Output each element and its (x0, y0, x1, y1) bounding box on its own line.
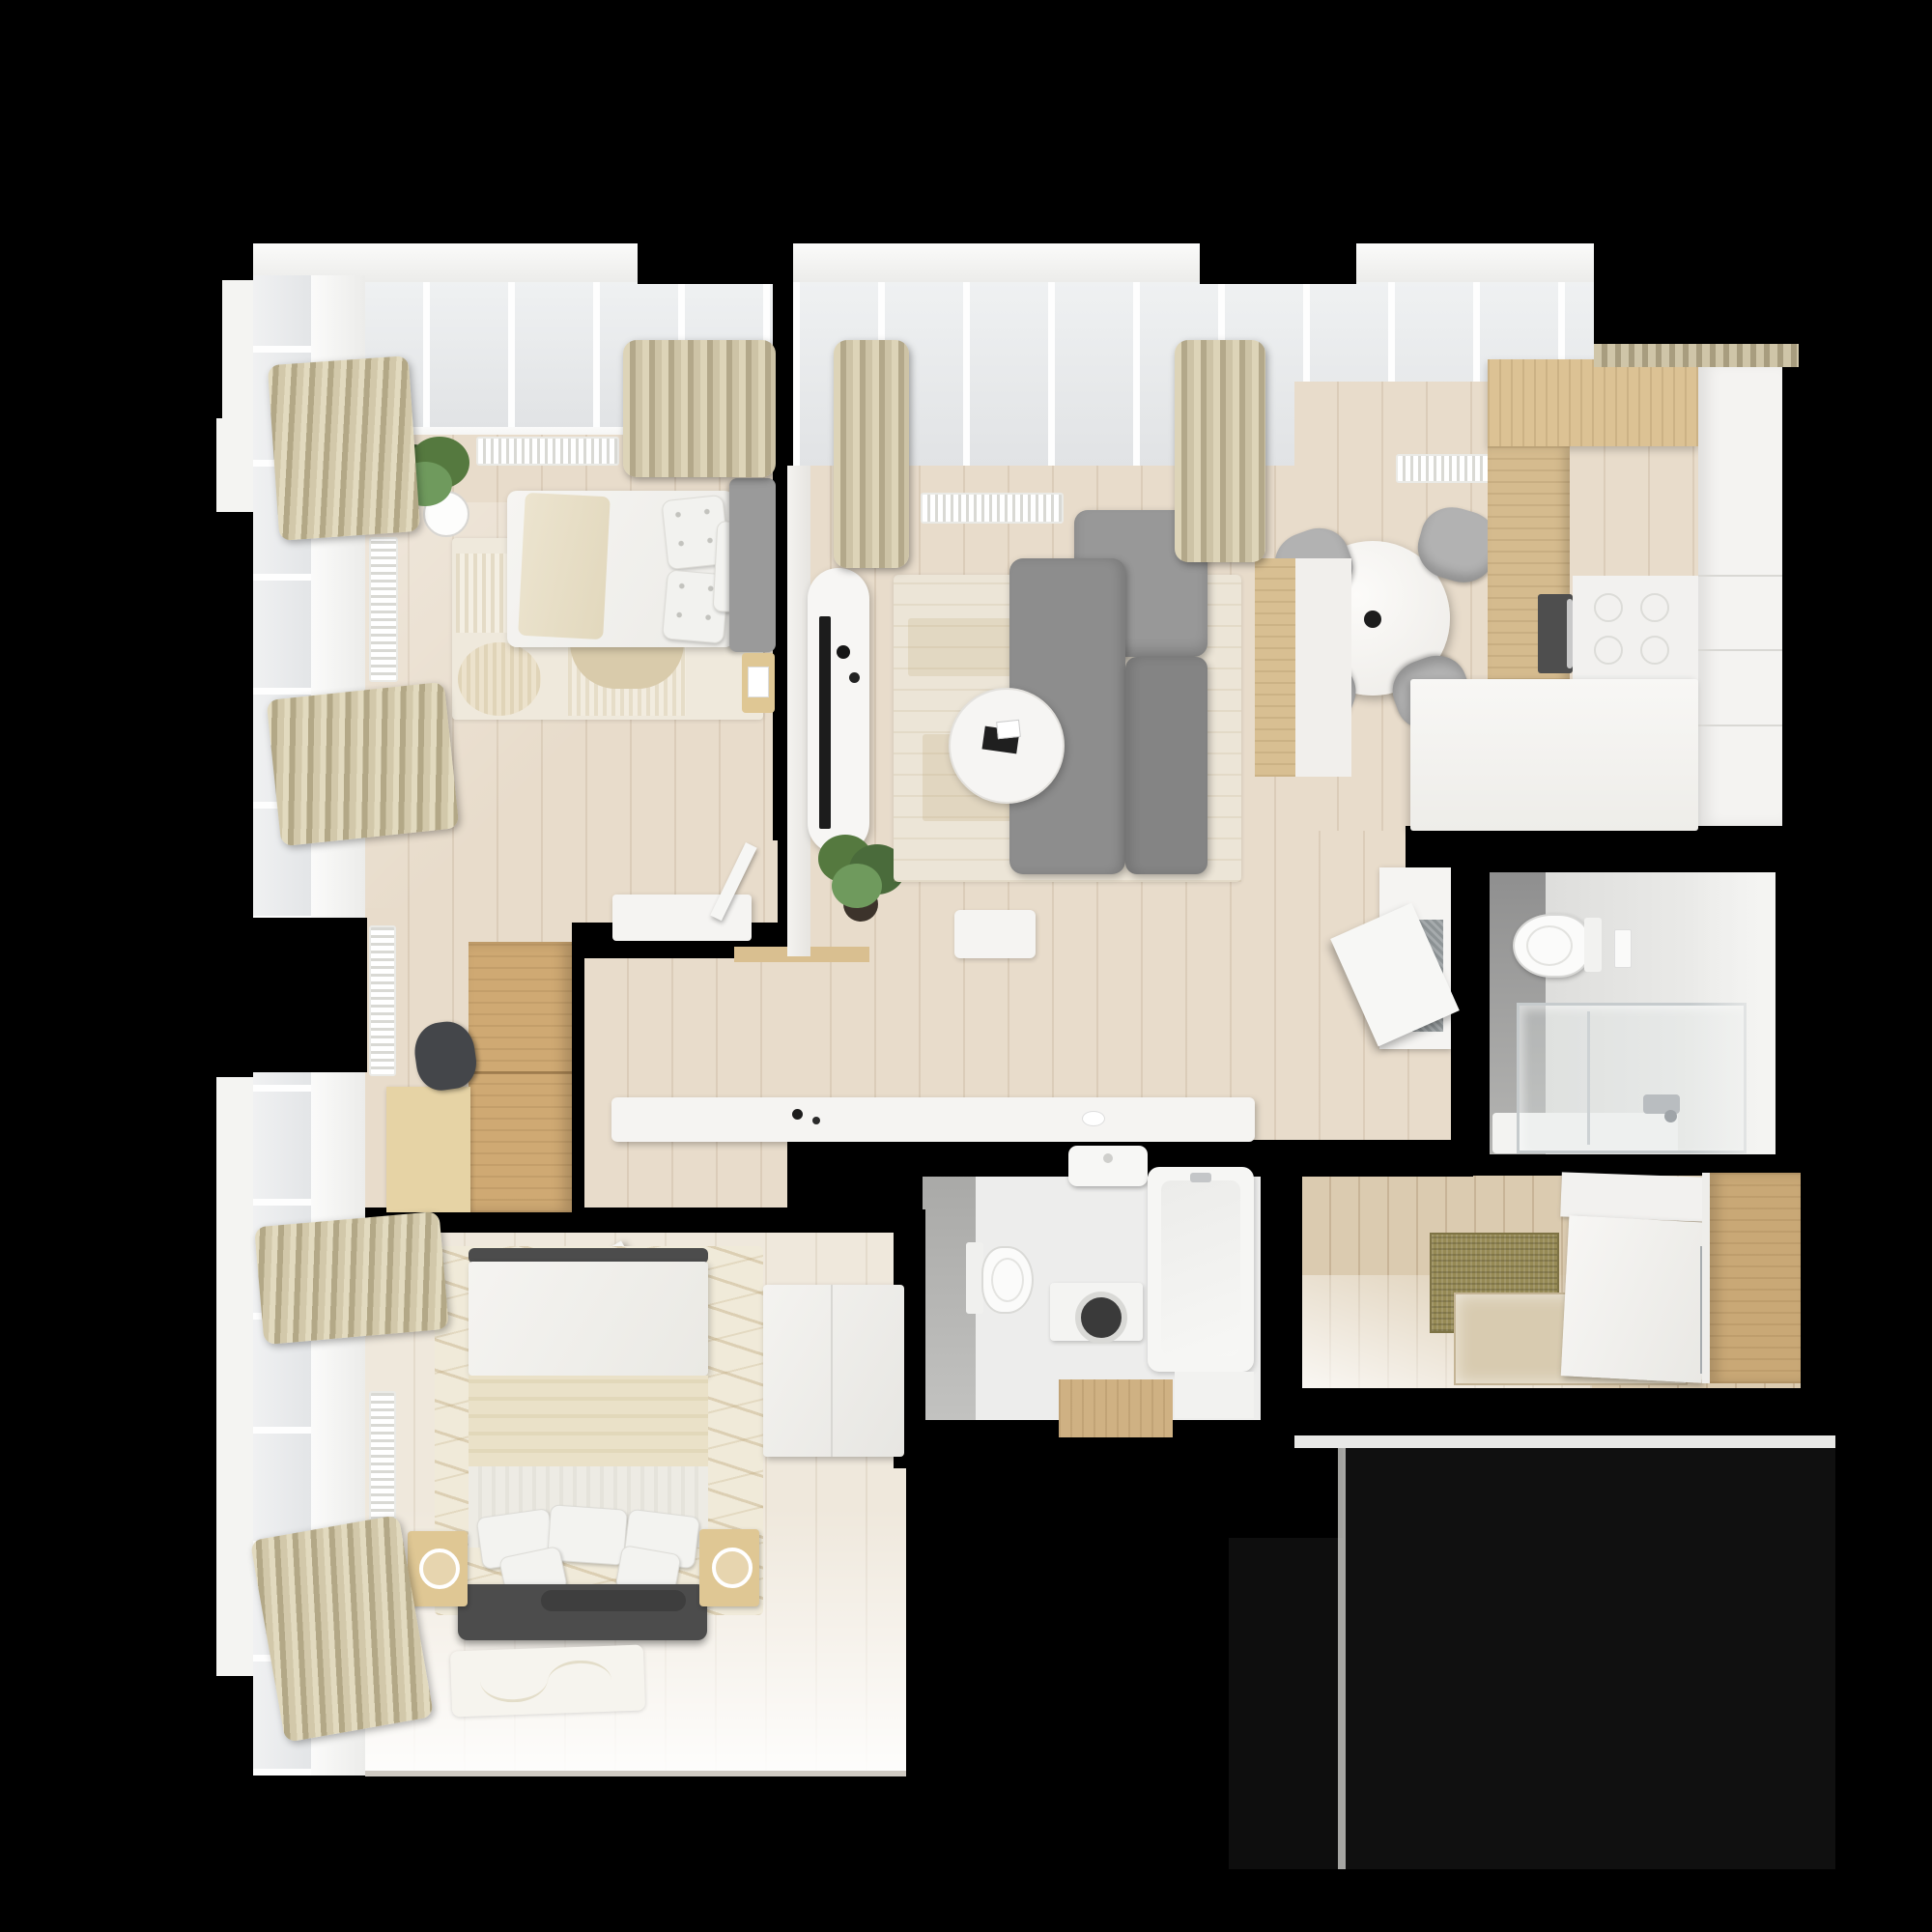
wardrobe-oak-tall (469, 942, 572, 1212)
entry-cabinet-edge (1702, 1173, 1710, 1383)
radiator-bedroom1-left-2 (369, 925, 396, 1076)
tv (819, 616, 831, 829)
bathtub-inner (1161, 1180, 1240, 1356)
flush-plate-bath1 (1614, 929, 1632, 968)
washing-machine (1050, 1283, 1143, 1341)
terrace-divider (1338, 1439, 1346, 1869)
kitchen-oven (1538, 594, 1573, 673)
blanket-seam-2 (547, 1660, 611, 1703)
toilet-seat-line (991, 1258, 1024, 1302)
kitchen-bar-strip-oak (1255, 558, 1295, 777)
terrace-deck-main (1343, 1439, 1835, 1869)
terrace-deck-side (1229, 1538, 1343, 1869)
pouf-hall (954, 910, 1036, 958)
wall-bathroom1-left (1451, 872, 1490, 1154)
radiator-bedroom1-left-1 (369, 537, 398, 682)
bench-seam (831, 1285, 833, 1457)
sofa-seat-section (1125, 657, 1207, 874)
floor-plan-canvas (0, 0, 1932, 1932)
curtain-bedroom1-left-upper (268, 355, 420, 541)
lamp-right (712, 1548, 753, 1588)
wall-corner-kitchen (1594, 135, 1835, 352)
floor-hallway-left (584, 956, 787, 1224)
sliding-door-top (1560, 1172, 1705, 1221)
wood-step-mat-bath2 (1059, 1379, 1173, 1437)
toilet-tank-bath1 (1584, 918, 1602, 972)
kitchen-cooktop-counter (1573, 576, 1698, 682)
wall-kitchen-right (1782, 350, 1835, 833)
shower-head (1664, 1110, 1677, 1122)
toilet-seat-line (1526, 925, 1573, 966)
curtain-bedroom1-corner (623, 340, 776, 477)
white-shelf-bath2 (1175, 1372, 1254, 1418)
wall-nook-hall (570, 958, 584, 1224)
sliding-door-main (1561, 1215, 1710, 1382)
plant-leaves-3 (832, 864, 882, 908)
bathtub (1148, 1167, 1254, 1372)
drawer-seam-2 (1698, 649, 1782, 651)
console-long-sideboard (611, 1097, 1255, 1142)
sink-faucet (1103, 1153, 1113, 1163)
wall-stub-top-left-b (150, 138, 222, 418)
wardrobe-seam (469, 1071, 572, 1074)
wall-patch-left-mid (253, 918, 367, 1072)
desk-birch (386, 1087, 470, 1212)
curtain-living-right (1175, 340, 1265, 562)
wall-kitchen-bath1 (1406, 826, 1835, 872)
bed-headboard-gray (729, 478, 776, 652)
burner-4 (1640, 636, 1669, 665)
decor-dot-1 (792, 1109, 803, 1120)
sink-bath2 (1068, 1146, 1148, 1186)
wall-stub-left-1 (95, 607, 166, 726)
floor-edge-bedroom2 (365, 1771, 906, 1776)
washer-drum (1075, 1292, 1127, 1344)
tv-decor-round-2 (849, 672, 860, 683)
tv-console (808, 568, 869, 854)
side-stool (742, 653, 775, 713)
wall-stub-left-3 (95, 1725, 166, 1830)
book (748, 667, 769, 697)
blanket-seam-1 (479, 1656, 549, 1703)
kitchen-white-column (1698, 362, 1782, 826)
window-outer-strip-bedroom2 (216, 1077, 253, 1676)
bed-throw-cream (518, 493, 611, 639)
wall-bathroom1-right (1776, 853, 1797, 1174)
lamp-left (419, 1548, 460, 1589)
kitchen-curtain-strip (1594, 344, 1799, 367)
nightstand-left (408, 1531, 468, 1606)
toilet-bath1 (1513, 914, 1590, 978)
drawer-seam-1 (1698, 575, 1782, 577)
wall-entry-left (1288, 1154, 1302, 1388)
window-outer-sill (793, 243, 1594, 282)
floor-blanket (450, 1645, 645, 1718)
tv-decor-round-1 (837, 645, 850, 659)
radiator-living-top (921, 493, 1064, 524)
decor-bowl (1082, 1111, 1105, 1126)
bench-white-corner (763, 1285, 904, 1457)
coffee-table-round (949, 688, 1065, 804)
entry-cabinet-oak (1710, 1173, 1801, 1383)
rug-stripe-block (456, 554, 508, 633)
bed2-white-section (469, 1262, 708, 1376)
curtain-bedroom1-left-lower (267, 682, 460, 847)
wall-entry-bottom (1288, 1388, 1843, 1432)
coffee-table-book (996, 720, 1021, 739)
wall-stub-top-2 (638, 135, 793, 284)
bed2-headboard-dark (458, 1584, 707, 1640)
burner-2 (1640, 593, 1669, 622)
decor-dot-2 (812, 1117, 820, 1124)
curtain-bedroom2-upper (254, 1211, 449, 1345)
rug-circle-accent (458, 642, 541, 716)
dining-vase (1364, 611, 1381, 628)
wall-stub-left-2 (89, 918, 166, 1072)
kitchen-upper-cabinets (1488, 359, 1698, 446)
nightstand-right (699, 1529, 759, 1606)
wall-stub-top-3 (1200, 135, 1356, 284)
burner-3 (1594, 636, 1623, 665)
tub-faucet (1190, 1173, 1211, 1182)
headboard-bolster (541, 1590, 686, 1611)
curtain-living-left (834, 340, 909, 568)
bed2-cream-blanket (469, 1376, 708, 1466)
radiator-bedroom1-top (476, 437, 619, 466)
kitchen-peninsula-counter (1410, 679, 1698, 831)
burner-1 (1594, 593, 1623, 622)
drawer-seam-3 (1698, 724, 1782, 726)
shower-glass-enclosure (1517, 1003, 1747, 1153)
kitchen-bar-counter-white (1295, 558, 1351, 777)
toilet-bath2 (981, 1246, 1034, 1314)
wall-entry-right (1801, 1154, 1835, 1432)
shower-glass-panel (1587, 1011, 1590, 1145)
